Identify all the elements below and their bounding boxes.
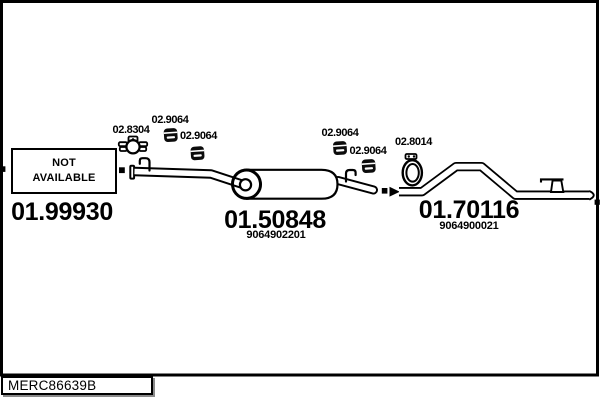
rubber-hanger-icon xyxy=(362,159,376,173)
label-rear-oe-number: 9064900021 xyxy=(439,221,498,232)
flange-icon xyxy=(390,187,400,197)
connection-marker xyxy=(119,167,125,173)
label-middle-oe-number: 9064902201 xyxy=(246,230,305,241)
connection-marker xyxy=(0,166,5,172)
drawing-code: MERC86639B xyxy=(8,378,96,393)
exhaust-tip xyxy=(589,191,593,200)
label-front-part-number: 01.99930 xyxy=(11,200,113,225)
bracket-icon xyxy=(541,179,564,192)
connection-marker xyxy=(595,200,600,205)
label-hanger-4: 02.9064 xyxy=(350,146,387,157)
not-available-line1: NOT xyxy=(52,156,76,171)
label-hanger-1: 02.9064 xyxy=(152,115,189,126)
not-available-box: NOT AVAILABLE xyxy=(11,148,117,194)
connection-marker xyxy=(382,188,388,194)
exhaust-diagram-page: NOT AVAILABLE 02.8304 02.9064 02.9064 02… xyxy=(0,0,600,400)
label-hanger-2: 02.9064 xyxy=(180,131,217,142)
band-clamp-icon xyxy=(403,154,422,185)
label-clamp-rear: 02.8014 xyxy=(395,137,432,148)
label-clamp-front: 02.8304 xyxy=(113,125,150,136)
rubber-hanger-icon xyxy=(164,128,178,142)
label-hanger-3: 02.9064 xyxy=(322,128,359,139)
u-bolt-clamp-icon xyxy=(119,137,147,154)
rubber-hanger-icon xyxy=(190,146,204,160)
drawing-code-box: MERC86639B xyxy=(1,376,153,395)
rubber-hanger-icon xyxy=(333,141,347,155)
not-available-line2: AVAILABLE xyxy=(32,171,95,186)
muffler-drawing xyxy=(130,158,373,200)
